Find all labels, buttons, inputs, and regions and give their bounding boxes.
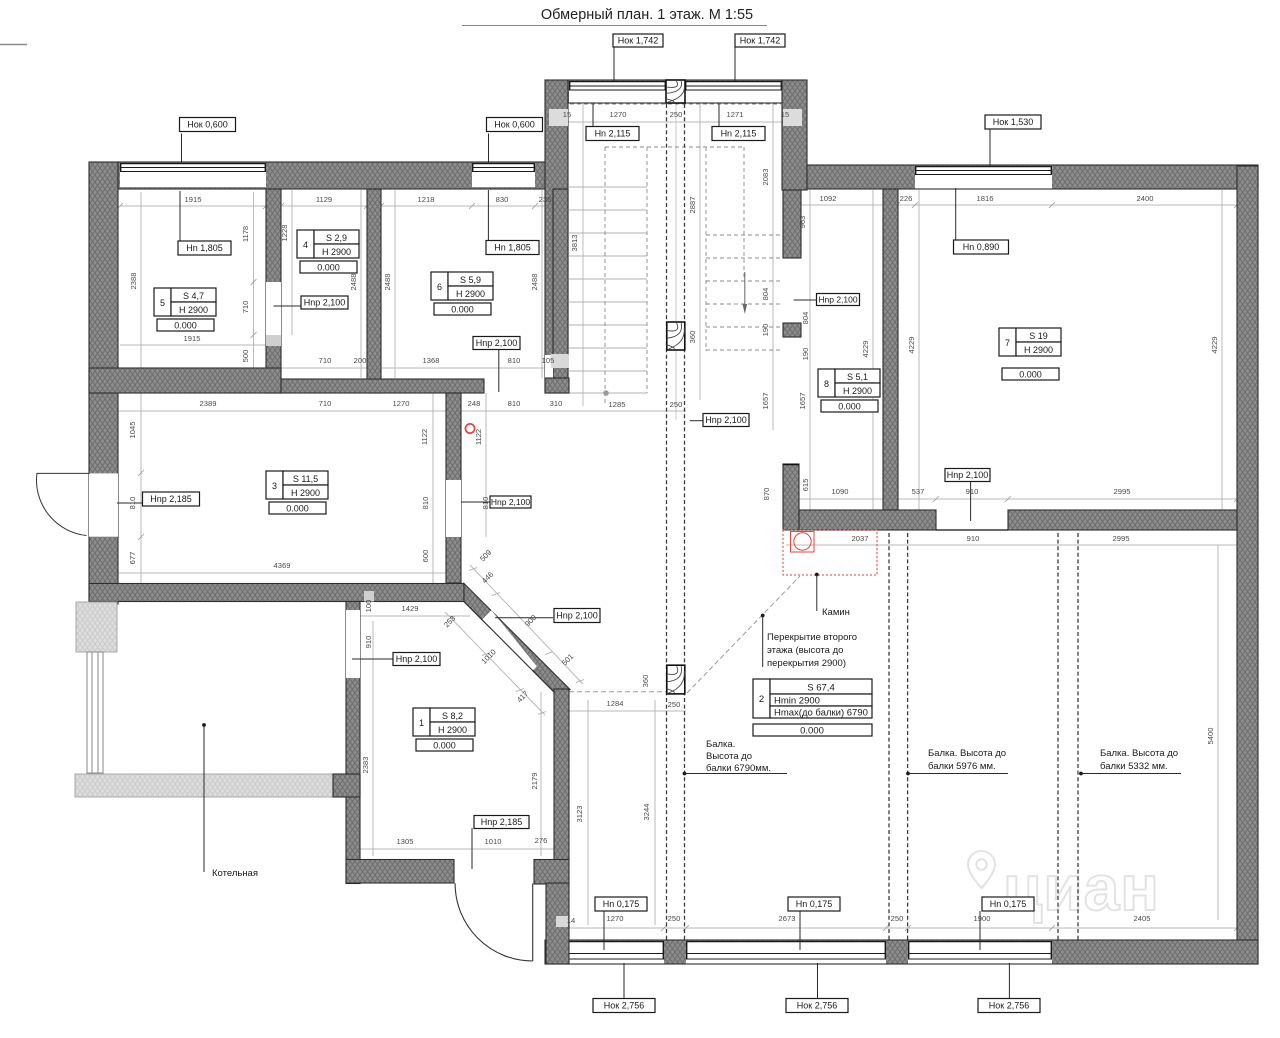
svg-text:15: 15 bbox=[781, 110, 789, 119]
svg-text:615: 615 bbox=[801, 479, 810, 492]
svg-text:1010: 1010 bbox=[485, 837, 502, 846]
svg-text:балки 5976 мм.: балки 5976 мм. bbox=[928, 761, 996, 772]
svg-text:Hn 1,805: Hn 1,805 bbox=[186, 243, 223, 253]
svg-text:Камин: Камин bbox=[822, 607, 850, 618]
svg-text:0.000: 0.000 bbox=[1019, 370, 1042, 380]
svg-text:1270: 1270 bbox=[610, 110, 627, 119]
svg-text:H 2900: H 2900 bbox=[438, 725, 467, 735]
svg-text:S 2,9: S 2,9 bbox=[326, 233, 347, 243]
svg-text:250: 250 bbox=[670, 400, 683, 409]
svg-text:500: 500 bbox=[241, 350, 250, 363]
svg-text:1657: 1657 bbox=[761, 393, 770, 410]
svg-text:870: 870 bbox=[762, 488, 771, 501]
svg-text:Балка. Высота до: Балка. Высота до bbox=[928, 748, 1006, 759]
svg-text:1090: 1090 bbox=[832, 487, 849, 496]
svg-text:Hnp 2,100: Hnp 2,100 bbox=[491, 497, 530, 507]
svg-text:Нок 2,756: Нок 2,756 bbox=[989, 1000, 1029, 1010]
svg-text:910: 910 bbox=[967, 534, 980, 543]
svg-text:1270: 1270 bbox=[607, 914, 624, 923]
svg-text:2488: 2488 bbox=[383, 274, 392, 291]
svg-text:1092: 1092 bbox=[820, 194, 837, 203]
svg-text:310: 310 bbox=[550, 399, 563, 408]
svg-text:910: 910 bbox=[364, 636, 373, 649]
svg-text:Перекрытие второго: Перекрытие второго bbox=[767, 632, 857, 643]
svg-text:0.000: 0.000 bbox=[433, 741, 456, 751]
svg-text:810: 810 bbox=[421, 497, 430, 510]
svg-text:100: 100 bbox=[364, 600, 373, 613]
svg-text:3813: 3813 bbox=[570, 235, 579, 252]
svg-text:1368: 1368 bbox=[423, 356, 440, 365]
svg-text:4369: 4369 bbox=[274, 561, 291, 570]
svg-text:Нок 2,756: Нок 2,756 bbox=[797, 1000, 837, 1010]
svg-text:Нок 2,756: Нок 2,756 bbox=[604, 1000, 644, 1010]
svg-text:1: 1 bbox=[419, 718, 424, 728]
svg-text:2: 2 bbox=[759, 694, 764, 705]
svg-text:Hnp 2,100: Hnp 2,100 bbox=[556, 610, 598, 620]
svg-text:Нок 1,742: Нок 1,742 bbox=[740, 35, 780, 45]
svg-text:Hn 0,175: Hn 0,175 bbox=[603, 899, 640, 909]
svg-text:1285: 1285 bbox=[609, 400, 626, 409]
svg-text:Hmin 2900: Hmin 2900 bbox=[774, 696, 820, 707]
svg-text:Hn 0,890: Hn 0,890 bbox=[963, 242, 1000, 252]
svg-text:Обмерный план. 1 этаж. М 1:55: Обмерный план. 1 этаж. М 1:55 bbox=[541, 7, 753, 23]
svg-text:Нок 1,742: Нок 1,742 bbox=[618, 35, 658, 45]
svg-text:710: 710 bbox=[319, 356, 332, 365]
svg-text:Hnp 2,100: Hnp 2,100 bbox=[818, 294, 857, 304]
svg-text:3: 3 bbox=[272, 481, 277, 491]
svg-text:1284: 1284 bbox=[607, 699, 624, 708]
svg-text:2405: 2405 bbox=[1134, 914, 1151, 923]
svg-text:S 4,7: S 4,7 bbox=[183, 291, 204, 301]
svg-text:Hn 2,115: Hn 2,115 bbox=[721, 128, 757, 138]
svg-text:H 2900: H 2900 bbox=[322, 247, 351, 257]
svg-text:Нок 1,530: Нок 1,530 bbox=[993, 117, 1033, 127]
svg-text:226: 226 bbox=[900, 194, 913, 203]
svg-text:1122: 1122 bbox=[420, 429, 429, 445]
svg-text:1915: 1915 bbox=[184, 334, 201, 343]
svg-text:S 8,2: S 8,2 bbox=[442, 711, 463, 721]
svg-text:H 2900: H 2900 bbox=[456, 289, 485, 299]
svg-text:этажа (высота до: этажа (высота до bbox=[767, 645, 843, 656]
svg-text:1178: 1178 bbox=[241, 226, 250, 242]
svg-text:105: 105 bbox=[542, 356, 555, 365]
svg-text:S 11,5: S 11,5 bbox=[293, 474, 318, 484]
svg-text:810: 810 bbox=[128, 497, 137, 510]
svg-text:830: 830 bbox=[496, 195, 509, 204]
svg-text:0.000: 0.000 bbox=[317, 263, 340, 273]
svg-text:190: 190 bbox=[801, 348, 810, 361]
svg-text:2673: 2673 bbox=[779, 914, 796, 923]
svg-text:0.000: 0.000 bbox=[800, 726, 824, 737]
svg-text:H 2900: H 2900 bbox=[843, 386, 872, 396]
svg-text:1218: 1218 bbox=[418, 195, 435, 204]
svg-text:2400: 2400 bbox=[1137, 194, 1154, 203]
svg-text:2383: 2383 bbox=[361, 757, 370, 774]
svg-text:1129: 1129 bbox=[316, 195, 332, 204]
svg-text:0.000: 0.000 bbox=[174, 321, 197, 331]
svg-text:804: 804 bbox=[761, 288, 770, 301]
svg-text:1270: 1270 bbox=[393, 399, 410, 408]
svg-text:1657: 1657 bbox=[798, 393, 807, 410]
svg-text:190: 190 bbox=[761, 324, 770, 337]
svg-text:2995: 2995 bbox=[1114, 487, 1131, 496]
svg-text:810: 810 bbox=[508, 356, 521, 365]
svg-text:1900: 1900 bbox=[974, 914, 991, 923]
svg-text:250: 250 bbox=[670, 110, 683, 119]
svg-text:963: 963 bbox=[798, 216, 807, 229]
svg-text:Hmax(до балки) 6790: Hmax(до балки) 6790 bbox=[774, 708, 868, 719]
svg-text:7: 7 bbox=[1005, 338, 1010, 348]
svg-text:1045: 1045 bbox=[128, 422, 137, 439]
svg-text:3123: 3123 bbox=[575, 806, 584, 823]
svg-text:2388: 2388 bbox=[129, 273, 138, 290]
svg-text:0.000: 0.000 bbox=[451, 305, 474, 315]
svg-text:537: 537 bbox=[912, 487, 925, 496]
svg-text:0.000: 0.000 bbox=[838, 402, 861, 412]
svg-text:Высота до: Высота до bbox=[706, 751, 752, 762]
svg-text:360: 360 bbox=[688, 331, 697, 344]
svg-text:1305: 1305 bbox=[397, 837, 414, 846]
svg-text:4: 4 bbox=[303, 240, 308, 250]
svg-text:2995: 2995 bbox=[1113, 534, 1130, 543]
svg-text:1816: 1816 bbox=[977, 194, 994, 203]
svg-text:1122: 1122 bbox=[474, 429, 483, 445]
svg-text:H 2900: H 2900 bbox=[1024, 345, 1053, 355]
svg-text:Hn 0,175: Hn 0,175 bbox=[990, 899, 1027, 909]
svg-text:2037: 2037 bbox=[852, 534, 869, 543]
svg-text:2083: 2083 bbox=[761, 169, 770, 186]
svg-text:1915: 1915 bbox=[185, 195, 202, 204]
svg-text:перекрытия 2900): перекрытия 2900) bbox=[767, 658, 846, 669]
svg-text:5400: 5400 bbox=[1206, 728, 1215, 745]
svg-text:Hnp 2,100: Hnp 2,100 bbox=[476, 338, 518, 348]
svg-text:Нок 0,600: Нок 0,600 bbox=[494, 119, 534, 129]
svg-text:Hn 1,805: Hn 1,805 bbox=[494, 242, 531, 252]
svg-text:14: 14 bbox=[567, 916, 575, 925]
svg-text:200: 200 bbox=[354, 356, 367, 365]
svg-text:2488: 2488 bbox=[349, 274, 358, 291]
svg-text:балки 5332 мм.: балки 5332 мм. bbox=[1100, 761, 1168, 772]
svg-text:810: 810 bbox=[508, 399, 521, 408]
svg-text:677: 677 bbox=[128, 552, 137, 565]
svg-text:810: 810 bbox=[481, 497, 490, 510]
svg-text:Hn 2,115: Hn 2,115 bbox=[595, 128, 631, 138]
svg-text:Hnp 2,100: Hnp 2,100 bbox=[396, 654, 438, 664]
svg-text:4229: 4229 bbox=[861, 341, 870, 358]
svg-text:250: 250 bbox=[668, 700, 681, 709]
svg-text:2389: 2389 bbox=[200, 399, 217, 408]
svg-text:1271: 1271 bbox=[727, 110, 744, 119]
svg-text:0.000: 0.000 bbox=[286, 504, 309, 514]
svg-text:6: 6 bbox=[437, 282, 442, 292]
svg-text:Hnp 2,100: Hnp 2,100 bbox=[947, 470, 989, 480]
svg-text:Балка.: Балка. bbox=[706, 739, 735, 750]
svg-text:910: 910 bbox=[966, 487, 979, 496]
svg-text:2887: 2887 bbox=[688, 197, 697, 214]
svg-text:S 19: S 19 bbox=[1029, 331, 1048, 341]
svg-text:S 5,9: S 5,9 bbox=[460, 275, 481, 285]
svg-text:H 2900: H 2900 bbox=[179, 305, 208, 315]
svg-text:S 5,1: S 5,1 bbox=[847, 372, 868, 382]
svg-text:балки 6790мм.: балки 6790мм. bbox=[706, 763, 771, 774]
svg-text:250: 250 bbox=[891, 914, 904, 923]
svg-text:276: 276 bbox=[535, 836, 548, 845]
svg-text:S 67,4: S 67,4 bbox=[807, 683, 834, 694]
svg-text:235: 235 bbox=[539, 195, 552, 204]
svg-text:H 2900: H 2900 bbox=[291, 488, 320, 498]
svg-text:360: 360 bbox=[641, 675, 650, 688]
svg-text:804: 804 bbox=[801, 312, 810, 325]
svg-text:15: 15 bbox=[563, 110, 571, 119]
svg-text:Hnp 2,185: Hnp 2,185 bbox=[481, 817, 523, 827]
svg-text:Hn 0,175: Hn 0,175 bbox=[796, 899, 833, 909]
svg-text:Нок 0,600: Нок 0,600 bbox=[187, 119, 227, 129]
svg-text:8: 8 bbox=[824, 379, 829, 389]
svg-text:Hnp 2,185: Hnp 2,185 bbox=[150, 494, 192, 504]
svg-text:4229: 4229 bbox=[1210, 337, 1219, 354]
svg-text:1228: 1228 bbox=[280, 225, 289, 242]
svg-text:Hnp 2,100: Hnp 2,100 bbox=[304, 297, 346, 307]
svg-text:2179: 2179 bbox=[530, 773, 539, 790]
svg-text:Hnp 2,100: Hnp 2,100 bbox=[705, 415, 747, 425]
svg-text:3244: 3244 bbox=[642, 804, 651, 821]
svg-text:710: 710 bbox=[319, 399, 332, 408]
svg-text:250: 250 bbox=[668, 914, 681, 923]
svg-text:2488: 2488 bbox=[530, 274, 539, 291]
svg-text:4229: 4229 bbox=[907, 337, 916, 354]
svg-text:1429: 1429 bbox=[402, 604, 419, 613]
svg-text:Балка. Высота до: Балка. Высота до bbox=[1100, 748, 1178, 759]
svg-text:248: 248 bbox=[468, 399, 481, 408]
svg-text:600: 600 bbox=[421, 550, 430, 563]
svg-text:Котельная: Котельная bbox=[212, 868, 258, 879]
svg-text:5: 5 bbox=[160, 298, 165, 308]
svg-text:710: 710 bbox=[241, 301, 250, 314]
